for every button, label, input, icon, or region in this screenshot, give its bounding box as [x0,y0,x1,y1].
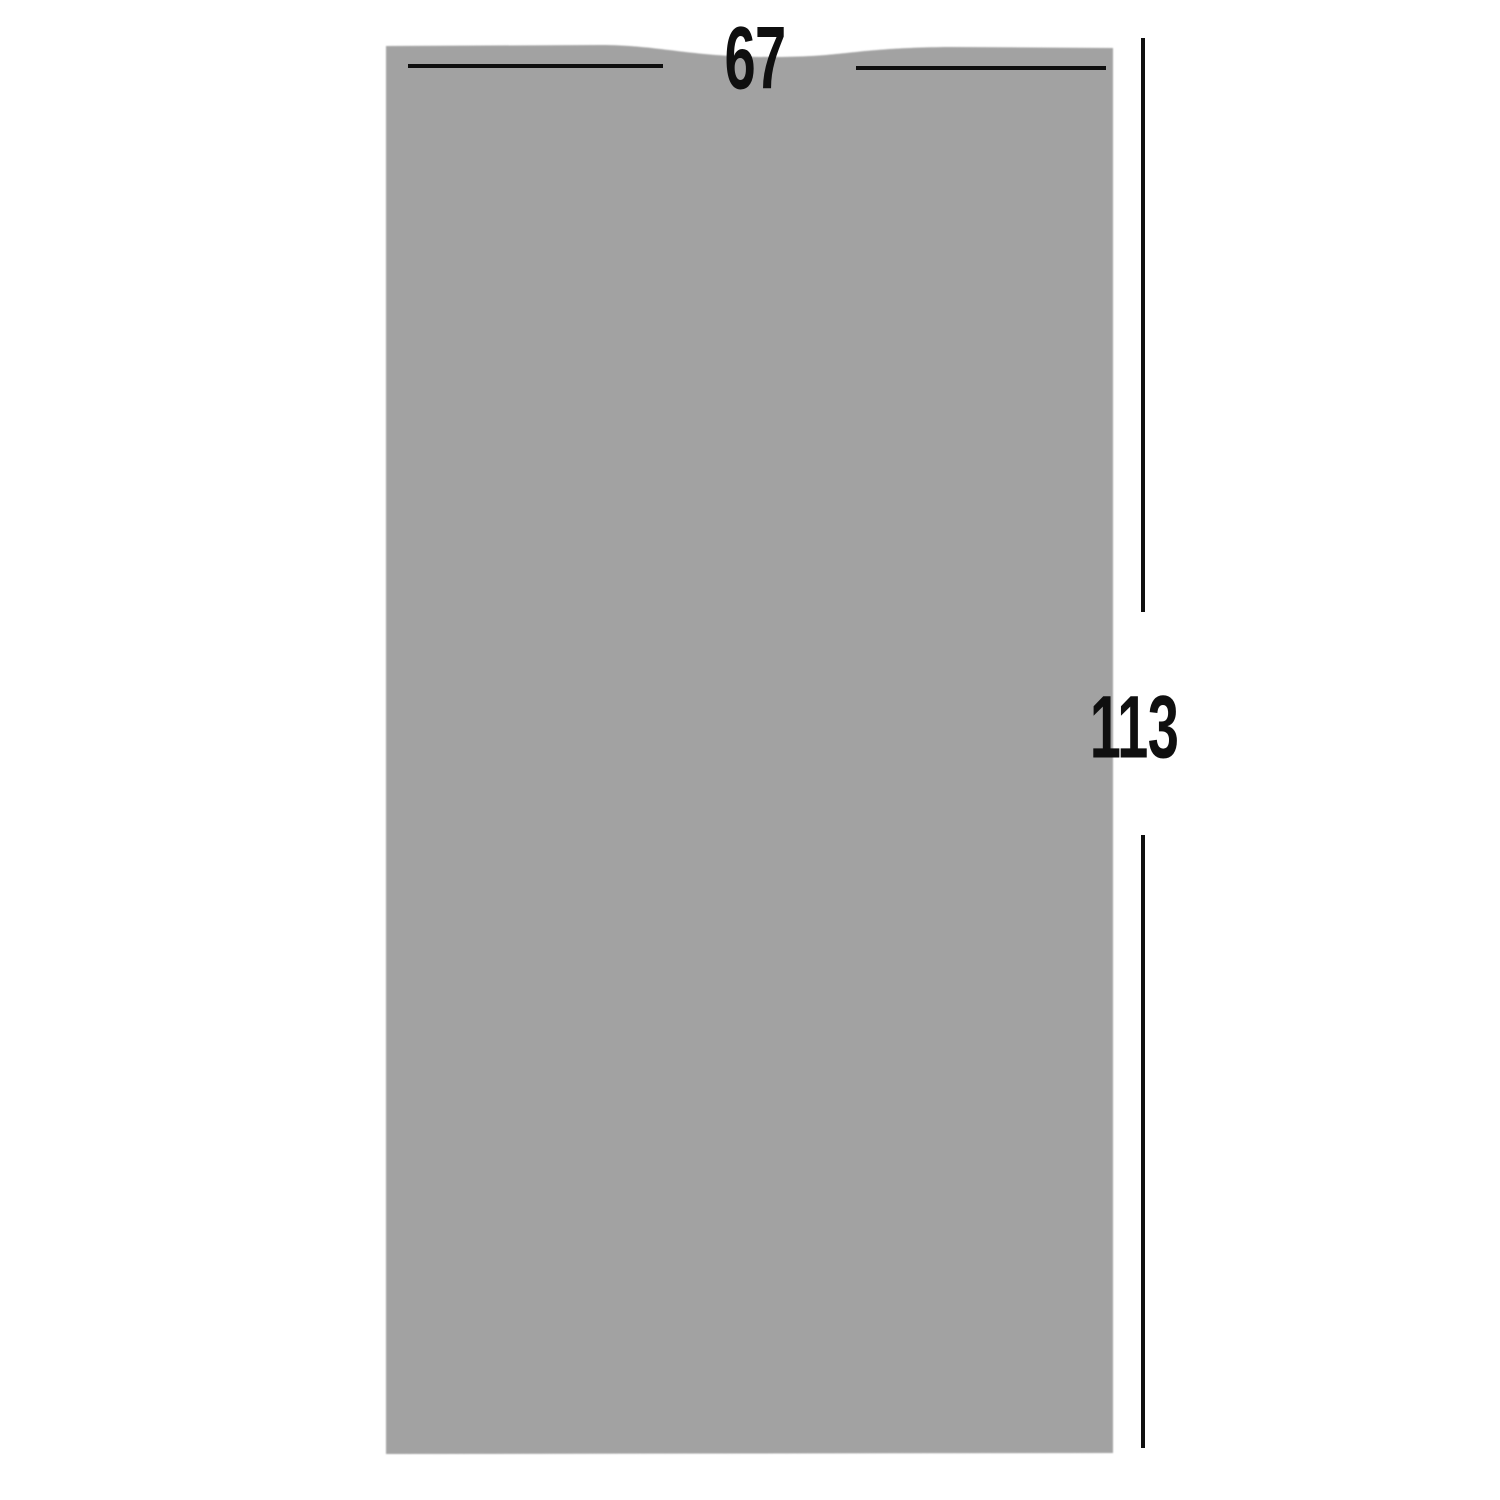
width-dimension-line-right [856,66,1106,70]
height-dimension-line-top [1141,38,1145,612]
product-silhouette-svg [0,0,1500,1500]
width-dimension-label: 67 [724,14,785,103]
width-dimension-line-left [408,64,663,68]
height-dimension-line-bottom [1141,835,1145,1448]
dimension-diagram: 67 113 [0,0,1500,1500]
height-dimension-label: 113 [1090,683,1179,772]
product-silhouette [386,45,1113,1454]
